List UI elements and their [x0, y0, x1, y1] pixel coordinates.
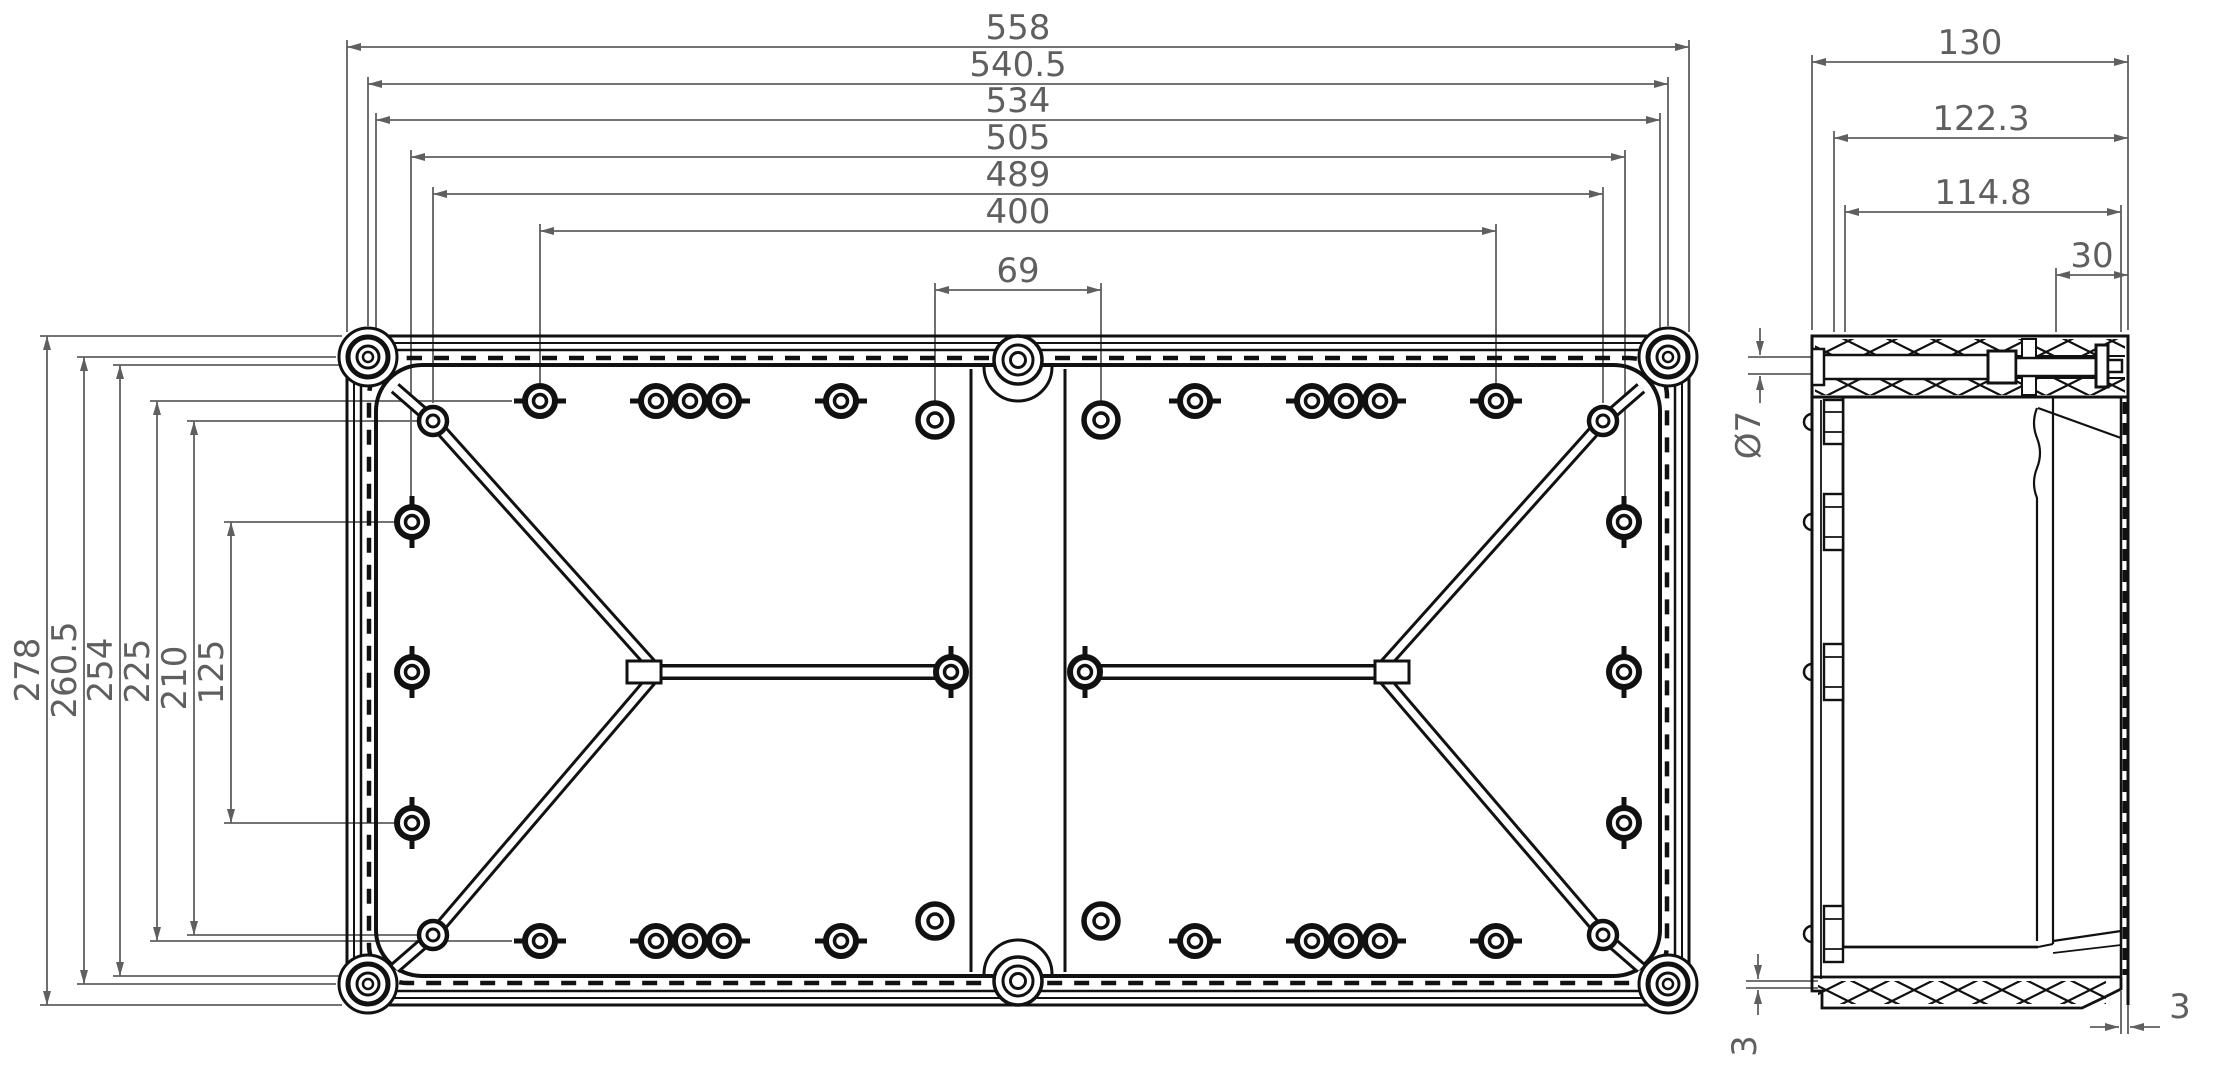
side-dim-122-3: 122.3 [1932, 99, 2029, 139]
plan-dim-225: 225 [118, 639, 158, 704]
mounting-bosses [397, 386, 1639, 956]
plan-view [339, 328, 1697, 1013]
side-dim-hole-diameter: Ø7 [1729, 411, 1769, 459]
side-dim-3-right: 3 [2169, 987, 2191, 1027]
hinge-tabs [1824, 400, 1843, 962]
plan-dim-489: 489 [986, 155, 1051, 195]
plan-dim-125: 125 [192, 640, 232, 705]
plan-dim-254: 254 [81, 638, 121, 703]
plan-dim-540-5: 540.5 [969, 45, 1066, 85]
enclosure-technical-drawing: 558 540.5 534 505 489 400 69 278 260.5 2… [0, 0, 2220, 1077]
side-dim-130: 130 [1938, 23, 2003, 63]
side-view [1804, 336, 2128, 1008]
base-section [1812, 977, 2121, 1008]
latch-clip [2096, 345, 2108, 387]
rib-outlines [395, 388, 1641, 968]
plan-dim-558: 558 [986, 8, 1051, 48]
plan-dim-278: 278 [8, 638, 48, 703]
rib-tab-left [627, 661, 661, 683]
plan-dim-260-5: 260.5 [45, 621, 85, 718]
plan-dim-69: 69 [996, 251, 1039, 291]
lid-screws [339, 328, 1697, 1013]
left-wall [1804, 397, 1843, 982]
plan-dim-210: 210 [155, 646, 195, 711]
plan-dim-534: 534 [986, 81, 1051, 121]
plan-dim-505: 505 [986, 118, 1051, 158]
side-dim-114-8: 114.8 [1934, 173, 2031, 213]
side-dim-3-left: 3 [1725, 1035, 1765, 1057]
dimension-labels: 558 540.5 534 505 489 400 69 278 260.5 2… [8, 8, 2191, 1057]
side-dim-30: 30 [2070, 236, 2113, 276]
right-wall [2121, 336, 2128, 1005]
interior-lines [1843, 397, 2121, 953]
plan-dim-400: 400 [986, 192, 1051, 232]
rib-tab-right [1375, 661, 1409, 683]
rib-cores [395, 388, 1641, 968]
